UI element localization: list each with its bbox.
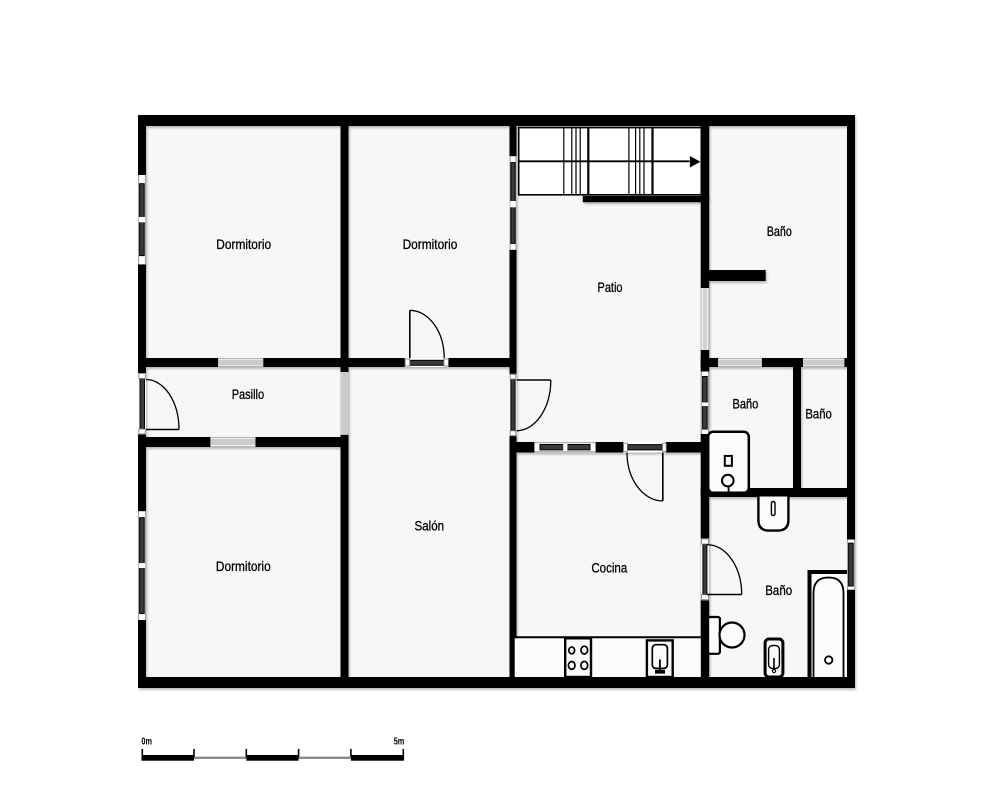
- svg-text:5m: 5m: [394, 736, 405, 748]
- svg-text:Baño: Baño: [767, 223, 792, 239]
- svg-text:Baño: Baño: [765, 582, 792, 598]
- svg-text:Salón: Salón: [415, 517, 445, 533]
- svg-text:Patio: Patio: [598, 279, 623, 295]
- svg-text:Pasillo: Pasillo: [232, 386, 265, 402]
- svg-text:Dormitorio: Dormitorio: [216, 236, 271, 252]
- svg-text:Baño: Baño: [805, 406, 832, 422]
- svg-text:Baño: Baño: [732, 396, 758, 412]
- svg-text:Cocina: Cocina: [591, 559, 627, 575]
- svg-text:Dormitorio: Dormitorio: [216, 558, 271, 574]
- svg-text:Dormitorio: Dormitorio: [403, 236, 458, 252]
- svg-text:0m: 0m: [141, 736, 152, 748]
